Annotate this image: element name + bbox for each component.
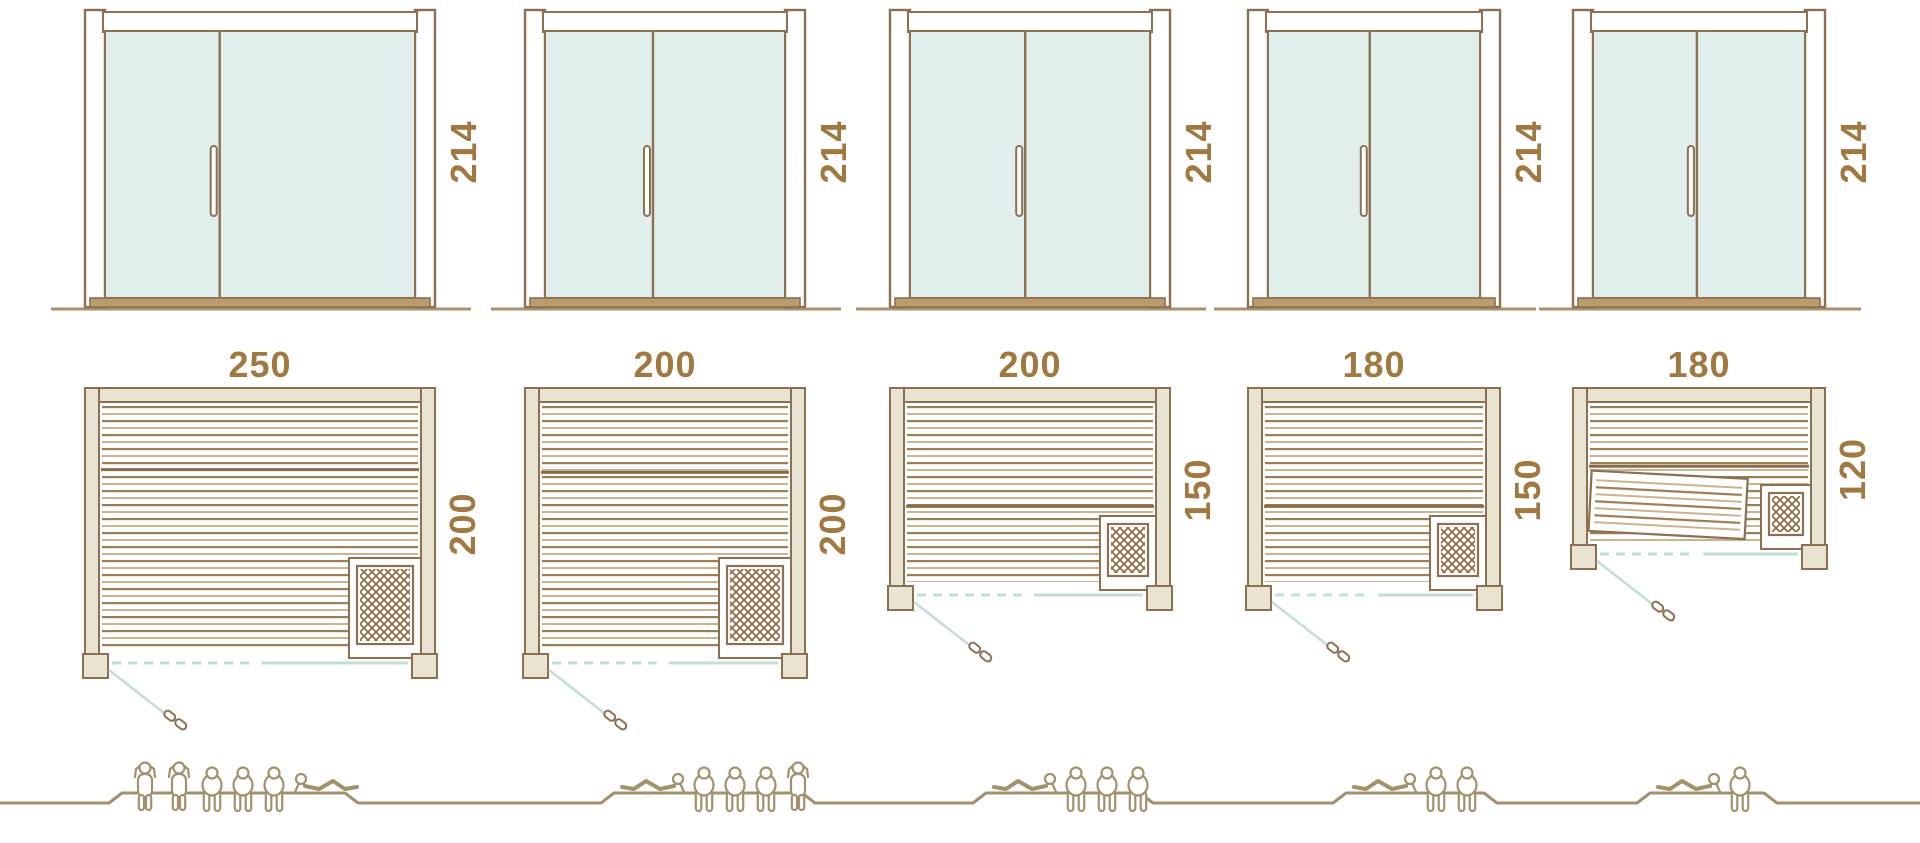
plan-depth-label: 150 — [1507, 458, 1548, 521]
wall-pier-right — [782, 654, 807, 678]
door-header — [1591, 12, 1807, 32]
door-handle — [1688, 146, 1694, 216]
plan-wall-left — [525, 388, 539, 658]
heater-grid — [730, 569, 780, 641]
door-sill — [895, 298, 1165, 307]
door-header — [543, 12, 787, 32]
figure-body — [1658, 781, 1710, 789]
plan-width-label: 200 — [998, 344, 1061, 385]
door-elevation-1: 214 — [51, 10, 484, 309]
figure-leg — [146, 795, 151, 810]
door-height-label: 214 — [813, 120, 854, 183]
door-elevation-2: 214 — [491, 10, 854, 309]
capacity-figures-1 — [135, 763, 357, 812]
heater-grid — [360, 569, 410, 641]
figure-head — [207, 768, 218, 779]
plan-wall-top — [85, 388, 435, 402]
plan-wall-top — [525, 388, 805, 402]
sauna-unit-3: 214200150 — [856, 10, 1219, 811]
figure-head — [673, 774, 683, 784]
scene-canvas: 2142502002142002002142001502141801502141… — [0, 0, 1920, 843]
heater-grid — [1772, 496, 1800, 532]
door-handle — [1016, 146, 1022, 216]
plan-wall-right — [1486, 388, 1500, 590]
figure-head — [1462, 768, 1473, 779]
door-handle — [211, 146, 217, 216]
tilted-bench-slats — [1594, 476, 1743, 534]
figure-leg — [799, 795, 804, 810]
plan-width-label: 200 — [633, 344, 696, 385]
door-sill — [1253, 298, 1495, 307]
capacity-figures-5 — [1658, 768, 1750, 812]
figure-head — [1102, 768, 1113, 779]
plan-wall-top — [890, 388, 1170, 402]
plan-wall-right — [1156, 388, 1170, 590]
figure-head — [1133, 768, 1144, 779]
wall-pier-left — [1571, 545, 1596, 569]
plan-wall-top — [1248, 388, 1500, 402]
plan-depth-label: 200 — [442, 492, 483, 555]
heater-grid — [1441, 527, 1475, 573]
plan-wall-left — [1248, 388, 1262, 590]
door-elevation-3: 214 — [856, 10, 1219, 309]
figure-head — [793, 763, 804, 774]
door-left-frame — [525, 10, 545, 307]
figure-head — [238, 768, 249, 779]
door-right-frame — [415, 10, 435, 307]
wall-pier-right — [1477, 586, 1502, 610]
door-left-frame — [1573, 10, 1593, 307]
door-sill — [530, 298, 800, 307]
figure-head — [296, 774, 306, 784]
door-swing-line — [549, 670, 626, 730]
figure-body — [1354, 781, 1406, 789]
wall-pier-right — [412, 654, 437, 678]
door-left-frame — [1248, 10, 1268, 307]
door-handle — [644, 146, 650, 216]
door-header — [908, 12, 1152, 32]
door-height-label: 214 — [1833, 120, 1874, 183]
door-right-frame — [785, 10, 805, 307]
figure-head — [1709, 774, 1719, 784]
plan-wall-right — [421, 388, 435, 658]
door-swing-line — [109, 670, 186, 730]
figure-head — [1431, 768, 1442, 779]
door-swing-line — [1597, 561, 1674, 621]
heater-grid — [1111, 527, 1145, 573]
figure-leg — [792, 795, 797, 810]
figure-head — [1405, 774, 1415, 784]
door-glass — [545, 31, 785, 298]
door-glass — [910, 31, 1150, 298]
door-right-frame — [1150, 10, 1170, 307]
figure-head — [730, 768, 741, 779]
door-header — [103, 12, 417, 32]
door-swing-line — [1272, 602, 1349, 662]
plan-width-label: 250 — [228, 344, 291, 385]
door-sill — [1578, 298, 1820, 307]
door-right-frame — [1805, 10, 1825, 307]
plan-door-handle — [1326, 641, 1351, 663]
figure-head — [699, 768, 710, 779]
wall-pier-left — [1246, 586, 1271, 610]
sauna-unit-5: 214180120 — [1539, 10, 1874, 811]
plan-door-handle — [968, 641, 993, 663]
sauna-unit-1: 214250200 — [51, 10, 484, 811]
plan-wall-right — [791, 388, 805, 658]
door-handle — [1361, 146, 1367, 216]
figure-head — [761, 768, 772, 779]
plan-wall-top — [1573, 388, 1825, 402]
figure-head — [1045, 774, 1055, 784]
door-height-label: 214 — [1508, 120, 1549, 183]
plan-wall-left — [1573, 388, 1587, 549]
wall-pier-left — [888, 586, 913, 610]
door-left-frame — [85, 10, 105, 307]
figure-head — [1735, 768, 1746, 779]
floor-plan-1: 250200 — [83, 344, 483, 731]
figure-torso — [138, 774, 152, 797]
door-header — [1266, 12, 1482, 32]
figure-body — [994, 781, 1046, 789]
figure-torso — [172, 774, 186, 797]
plan-depth-label: 150 — [1177, 458, 1218, 521]
plan-wall-left — [85, 388, 99, 658]
floor-plan-5: 180120 — [1571, 344, 1873, 622]
wall-pier-left — [523, 654, 548, 678]
figure-body — [305, 781, 357, 789]
door-elevation-5: 214 — [1539, 10, 1874, 309]
door-glass — [105, 31, 415, 298]
plan-width-label: 180 — [1342, 344, 1405, 385]
figure-leg — [173, 795, 178, 810]
figure-leg — [180, 795, 185, 810]
sauna-unit-4: 214180150 — [1214, 10, 1549, 811]
plan-wall-left — [890, 388, 904, 590]
floor-plan-4: 180150 — [1246, 344, 1548, 663]
door-swing-line — [914, 602, 991, 662]
door-glass — [1593, 31, 1805, 298]
tilted-bench — [1589, 471, 1748, 539]
plan-door-handle — [603, 709, 628, 731]
ground-profile — [0, 793, 1920, 803]
door-sill — [90, 298, 430, 307]
plan-door-handle — [163, 709, 188, 731]
figure-head — [174, 763, 185, 774]
plan-depth-label: 200 — [812, 492, 853, 555]
wall-pier-left — [83, 654, 108, 678]
figure-leg — [139, 795, 144, 810]
sauna-size-comparison-diagram: 2142502002142002002142001502141801502141… — [0, 0, 1920, 843]
plan-depth-label: 120 — [1832, 438, 1873, 501]
capacity-figures-2 — [622, 763, 808, 812]
door-right-frame — [1480, 10, 1500, 307]
capacity-figures-3 — [994, 768, 1148, 812]
door-left-frame — [890, 10, 910, 307]
door-height-label: 214 — [443, 120, 484, 183]
door-height-label: 214 — [1178, 120, 1219, 183]
door-elevation-4: 214 — [1214, 10, 1549, 309]
figure-torso — [791, 774, 805, 797]
floor-plan-3: 200150 — [888, 344, 1218, 663]
capacity-figures-4 — [1354, 768, 1477, 812]
plan-door-handle — [1651, 600, 1676, 622]
figure-head — [1071, 768, 1082, 779]
figure-body — [622, 781, 674, 789]
wall-pier-right — [1147, 586, 1172, 610]
figure-head — [140, 763, 151, 774]
plan-width-label: 180 — [1667, 344, 1730, 385]
plan-wall-right — [1811, 388, 1825, 549]
figure-head — [269, 768, 280, 779]
door-glass — [1268, 31, 1480, 298]
floor-plan-2: 200200 — [523, 344, 853, 731]
wall-pier-right — [1802, 545, 1827, 569]
sauna-unit-2: 214200200 — [491, 10, 854, 811]
